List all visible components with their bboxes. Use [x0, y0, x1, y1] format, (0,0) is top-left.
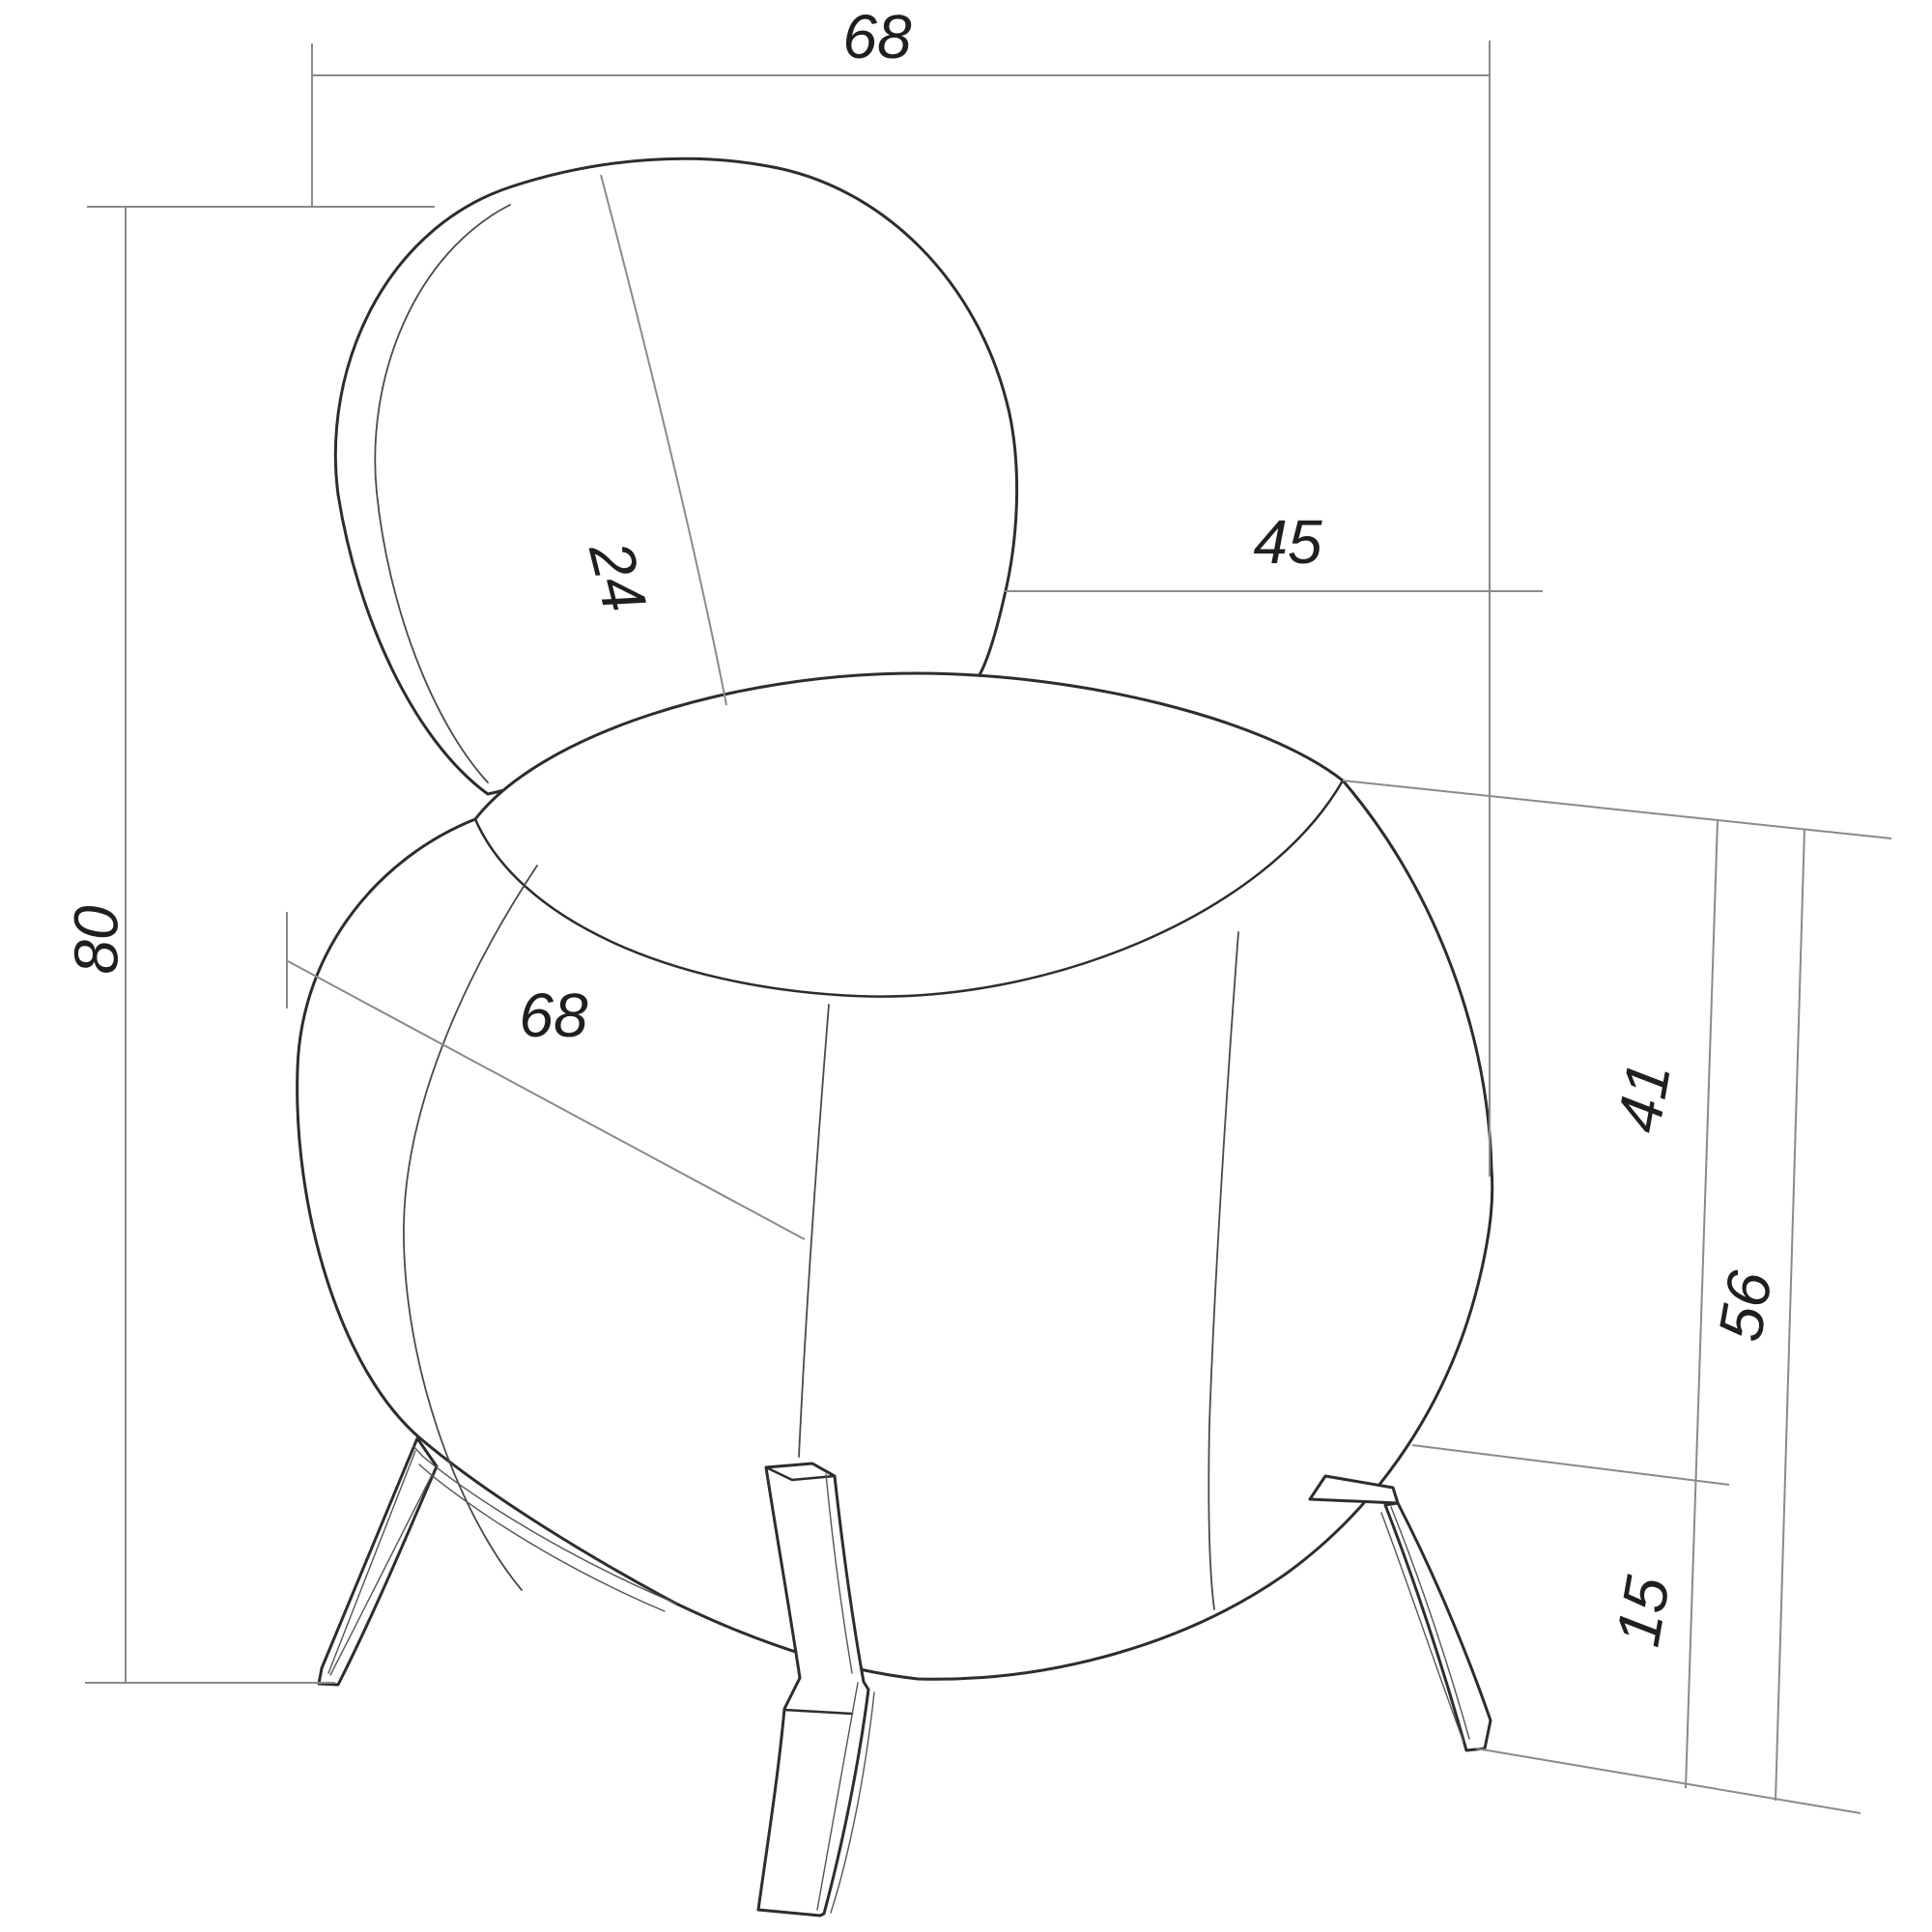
seat-sphere	[298, 673, 1492, 1679]
chair-dimension-drawing: 68 80 24 45 68 41 56 15	[0, 0, 1932, 1932]
dimension-drawing-page: 68 80 24 45 68 41 56 15	[0, 0, 1932, 1932]
dim-label-seat-diameter: 68	[519, 980, 588, 1050]
dim-ext-floor-right	[1476, 1748, 1861, 1813]
leg-left-inner-edge-a	[328, 1451, 415, 1673]
dim-line-seat-height	[1776, 829, 1804, 1801]
dim-label-seat-clearance: 41	[1604, 1058, 1684, 1138]
leg-left-blade	[319, 1438, 437, 1685]
dim-label-leg-height: 15	[1603, 1571, 1683, 1651]
dim-ext-leg-top-right	[1412, 1445, 1729, 1485]
dim-label-backrest-height: 45	[1253, 507, 1322, 577]
dim-label-overall-height: 80	[61, 905, 130, 975]
leg-left-inner-edge-b	[330, 1473, 433, 1675]
leg-right-blade	[1385, 1503, 1491, 1750]
dim-label-backrest-width: 68	[842, 2, 912, 71]
dim-ext-seat-top-right	[1343, 781, 1891, 838]
dim-label-seat-height: 56	[1705, 1265, 1785, 1346]
